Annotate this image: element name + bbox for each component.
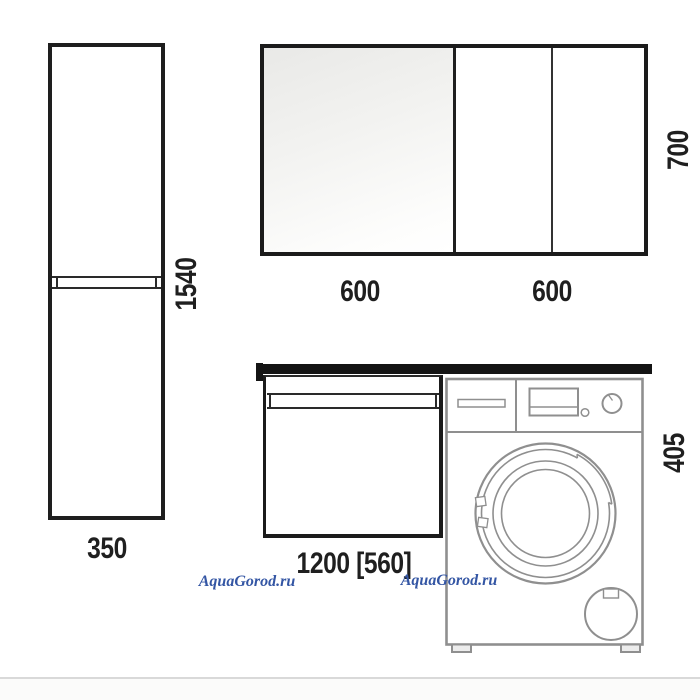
furniture-dimension-drawing: 1540 350 600 600 700 1200 [560] 405 <box>0 0 700 700</box>
bottom-background-band <box>0 679 700 700</box>
tall-cabinet-outline <box>48 43 165 520</box>
washer-door-hinge-top <box>475 496 486 506</box>
tall-cabinet-divider-top-line <box>52 276 161 278</box>
tall-cabinet-divider-left-tick <box>56 276 58 289</box>
mirror-glass-pane <box>264 48 453 252</box>
dimension-label-cabinet-height: 1540 <box>172 257 202 310</box>
vanity-handle-groove-top-line <box>267 393 439 395</box>
vanity-handle-groove-bottom-line <box>267 407 439 409</box>
washer-foot-left <box>452 645 471 653</box>
mirror-divider-2 <box>551 48 553 252</box>
vanity-groove-left-tick <box>269 393 271 409</box>
dimension-label-mirror-left-width: 600 <box>340 277 380 307</box>
tall-cabinet-divider-right-tick <box>155 276 157 289</box>
dimension-label-mirror-right-width: 600 <box>532 277 572 307</box>
dimension-label-mirror-height: 700 <box>664 130 694 170</box>
watermark-right: AquaGorod.ru <box>401 572 497 590</box>
washer-handle-step-left <box>577 454 578 458</box>
washing-machine-drawing <box>435 360 660 665</box>
tall-cabinet-divider-bottom-line <box>52 287 161 289</box>
dimension-label-washer-section-height: 405 <box>660 433 690 473</box>
washer-door-hinge-bottom <box>477 517 488 527</box>
watermark-left: AquaGorod.ru <box>199 573 295 591</box>
dimension-label-vanity-width: 1200 [560] <box>297 549 412 579</box>
dimension-label-cabinet-width: 350 <box>87 534 127 564</box>
washer-filter-notch <box>604 589 619 598</box>
mirror-divider-1 <box>453 48 456 252</box>
vanity-drawer-unit-outline <box>263 375 443 538</box>
washer-foot-right <box>621 645 640 653</box>
